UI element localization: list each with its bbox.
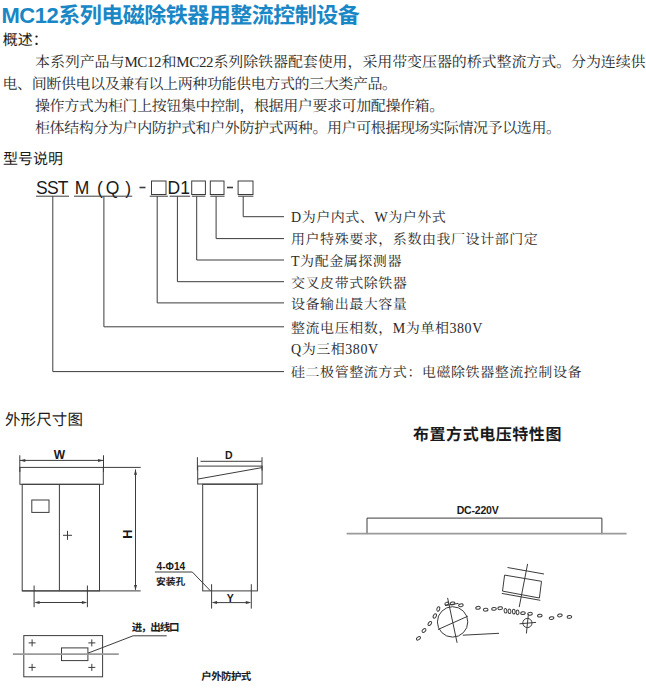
svg-text:H: H	[121, 530, 135, 539]
svg-text:安装孔: 安装孔	[156, 576, 186, 587]
svg-text:户外防护式: 户外防护式	[201, 670, 252, 682]
svg-text:用户特殊要求，系数由我厂设计部门定: 用户特殊要求，系数由我厂设计部门定	[291, 232, 538, 247]
svg-text:进，出线口: 进，出线口	[132, 621, 180, 633]
svg-text:Q为三相380V: Q为三相380V	[291, 342, 379, 357]
svg-text:SST: SST	[36, 178, 69, 198]
svg-text:设备输出最大容量: 设备输出最大容量	[291, 297, 407, 312]
svg-text:D: D	[225, 449, 233, 461]
svg-text:整流电压相数，M为单相380V: 整流电压相数，M为单相380V	[291, 321, 483, 336]
svg-text:T为配金属探测器: T为配金属探测器	[291, 254, 402, 269]
svg-text:D为户内式、W为户外式: D为户内式、W为户外式	[291, 210, 446, 225]
svg-text:M(Q): M(Q)	[75, 178, 131, 198]
svg-text:DC-220V: DC-220V	[457, 504, 499, 516]
svg-text:Y: Y	[227, 592, 234, 604]
svg-text:4-Φ14: 4-Φ14	[157, 561, 186, 572]
svg-text:D1: D1	[168, 178, 191, 198]
svg-text:硅二极管整流方式：电磁除铁器整流控制设备: 硅二极管整流方式：电磁除铁器整流控制设备	[291, 365, 582, 380]
svg-text:W: W	[54, 448, 66, 462]
svg-text:交叉皮带式除铁器: 交叉皮带式除铁器	[291, 276, 407, 291]
